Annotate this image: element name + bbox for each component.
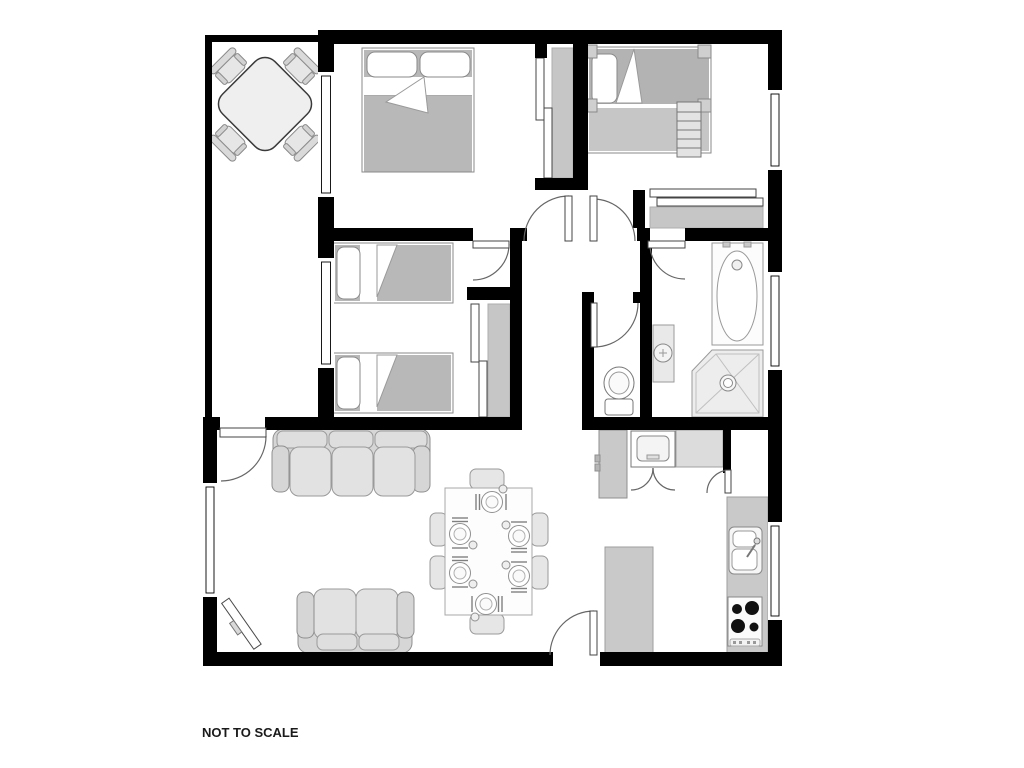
kitchen-counter-top	[676, 430, 723, 467]
wall-left-upper	[318, 368, 334, 417]
dining-chair	[430, 513, 447, 546]
door-bedroom2	[473, 241, 509, 280]
wall-bottom	[600, 652, 782, 666]
tv	[218, 598, 262, 652]
bunk-ladder	[677, 102, 701, 157]
wardrobe-interior	[488, 304, 510, 417]
pillow	[420, 52, 470, 77]
footer-disclaimer: NOT TO SCALE Disclaimer: For marketing p…	[202, 697, 592, 768]
door-bedroom3	[590, 196, 635, 241]
bed-post	[698, 45, 711, 58]
window-bedroom3	[768, 90, 782, 170]
window-bathroom	[768, 272, 782, 370]
sliding-door-panel	[650, 189, 756, 197]
kitchen-island	[605, 547, 653, 653]
wall-bath-top	[637, 228, 650, 241]
wall-left	[203, 597, 217, 666]
living-room	[218, 429, 548, 653]
loveseat	[297, 589, 414, 653]
door-pantry	[707, 470, 731, 493]
dining-chair	[531, 556, 548, 589]
bathroom	[604, 242, 763, 417]
pillow	[337, 247, 360, 299]
wall-right	[768, 170, 782, 272]
dining-chair	[470, 469, 504, 489]
door-patio	[220, 428, 266, 481]
wall-left-upper	[318, 197, 334, 258]
wall-right	[768, 44, 782, 90]
wall-bottom	[203, 652, 553, 666]
master-bedroom	[362, 48, 573, 178]
wall-closet-bed3	[573, 44, 588, 190]
wall-living-top	[334, 417, 522, 430]
balcony-wall	[205, 35, 212, 417]
scale-note: NOT TO SCALE	[202, 726, 592, 741]
wall-master-bottom	[334, 228, 473, 241]
sliding-door-panel	[544, 108, 552, 178]
door-entry	[550, 611, 597, 655]
bedroom-3	[584, 45, 763, 228]
kitchen-sink	[729, 527, 762, 574]
bedroom-2	[333, 243, 510, 417]
fridge	[595, 430, 627, 498]
wall-wc-bath	[640, 241, 652, 417]
patio	[208, 46, 321, 162]
vanity-sink	[653, 325, 674, 382]
wall-living-top	[265, 417, 334, 430]
floorplan-canvas	[0, 0, 1024, 768]
dining-chair	[430, 556, 447, 589]
dining-set	[430, 469, 548, 634]
sliding-door-panel	[471, 304, 479, 362]
shower	[692, 350, 763, 417]
window-living	[203, 483, 217, 597]
toilet	[604, 367, 634, 415]
bathtub	[712, 242, 763, 345]
balcony-wall	[205, 35, 330, 42]
cooktop	[728, 597, 762, 646]
wall-closet3-side	[633, 190, 645, 228]
door-laundry-double	[631, 468, 675, 490]
dining-chair	[531, 513, 548, 546]
wall-top	[318, 30, 782, 44]
pillow	[367, 52, 417, 77]
wall-kitchen-top	[582, 417, 768, 430]
wall-wc-top	[633, 292, 640, 303]
wall-right	[768, 370, 782, 522]
washer	[631, 431, 675, 467]
wall-bed2-right	[510, 228, 522, 418]
sliding-door-panel	[479, 361, 487, 417]
wall-pantry-stub	[723, 428, 731, 473]
window-bedroom2	[318, 258, 334, 368]
door-bathroom	[648, 241, 685, 279]
floorplan-page: NOT TO SCALE Disclaimer: For marketing p…	[0, 0, 1024, 768]
door-master	[524, 196, 572, 241]
door-wc	[591, 303, 638, 347]
wall-living-top	[203, 417, 220, 430]
window-kitchen	[768, 522, 782, 620]
wall-bath-top	[685, 228, 768, 241]
wall-closet-top	[467, 287, 510, 300]
pillow	[592, 54, 617, 103]
wardrobe-interior	[650, 207, 763, 228]
sliding-door-panel	[657, 198, 763, 206]
wall-left-upper	[318, 44, 334, 72]
sofa-3-seat	[272, 429, 430, 496]
sliding-door-panel	[536, 58, 544, 120]
kitchen	[595, 430, 768, 653]
wardrobe-interior	[552, 48, 573, 178]
window-master	[318, 72, 334, 197]
pillow	[337, 357, 360, 409]
wall-closet-stub	[535, 44, 547, 58]
